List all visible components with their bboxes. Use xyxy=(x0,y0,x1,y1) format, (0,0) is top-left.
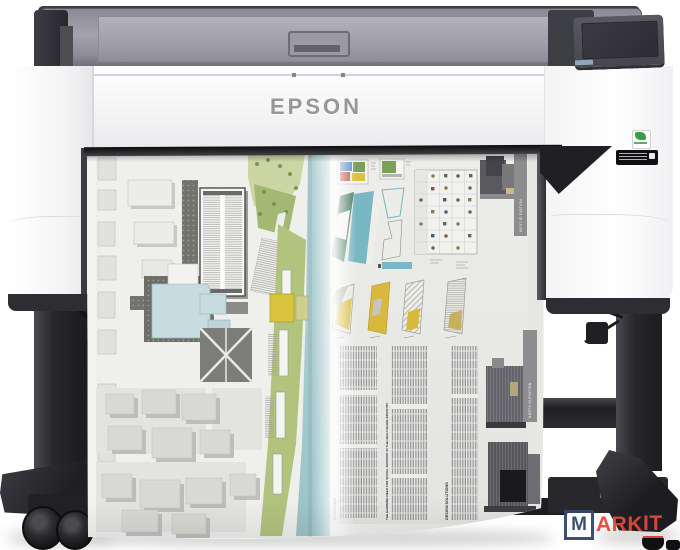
site-plan-map xyxy=(87,152,330,538)
parking-structure xyxy=(200,188,248,299)
product-photo: EPSON xyxy=(0,0,680,550)
eco-leaf-icon xyxy=(635,132,646,140)
groove-tick xyxy=(292,73,296,77)
watermark-m-box: M xyxy=(564,510,594,540)
elevation-label-west: WEST ELEVATION xyxy=(519,199,523,232)
ink-bay-right-seam xyxy=(548,214,670,245)
report-page: OVERVIEW THE GROWING NEED FOR SOCIAL SUP… xyxy=(330,149,545,524)
watermark-text-underlined: IT xyxy=(643,512,663,538)
store-watermark: M ARK IT xyxy=(564,510,663,540)
roll-cover-handle-grip xyxy=(294,45,340,52)
street-crossing xyxy=(200,328,252,382)
ink-bay-left-seam xyxy=(8,216,92,247)
eco-label-text-line xyxy=(634,142,647,144)
stand-bracket-right xyxy=(586,322,608,344)
caster-wheel-right-inner xyxy=(666,540,680,550)
brand-logo: EPSON xyxy=(236,94,396,122)
panel-accent xyxy=(575,60,593,66)
touchscreen xyxy=(581,21,658,60)
ink-bay-right-underside xyxy=(546,298,670,314)
printed-poster: OVERVIEW THE GROWING NEED FOR SOCIAL SUP… xyxy=(82,144,548,544)
roll-cover-handle xyxy=(288,31,350,57)
groove-tick xyxy=(341,73,345,77)
watermark-text: ARK xyxy=(596,513,643,537)
elevation-label-north: NORTH ELEVATION xyxy=(528,382,532,418)
paper-fold-highlight xyxy=(312,149,356,539)
model-nameplate-chip xyxy=(649,153,655,159)
ink-bay-left-underside xyxy=(8,294,92,311)
model-nameplate-text xyxy=(619,153,647,162)
icon-table xyxy=(415,170,477,268)
